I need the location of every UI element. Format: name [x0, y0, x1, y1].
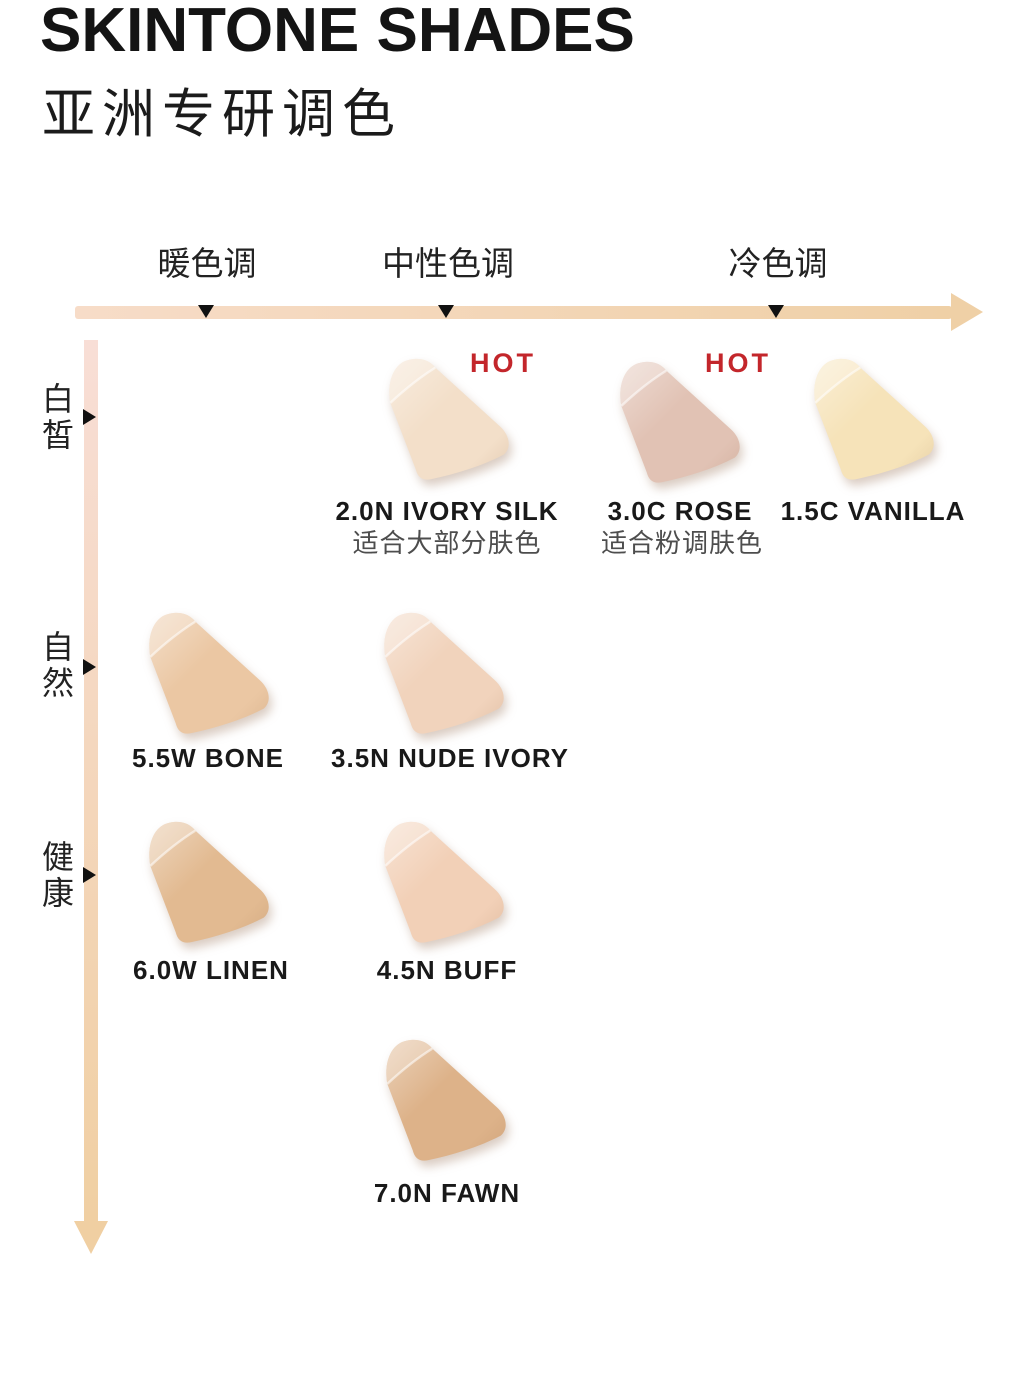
y-axis-label-fair: 白皙 [40, 382, 72, 454]
x-axis-tick-cool-icon [768, 305, 784, 318]
shade-name: 7.0N FAWN [374, 1179, 520, 1208]
smear-icon [372, 1033, 520, 1165]
page-subtitle: 亚洲专研调色 [42, 88, 402, 141]
x-axis-label-cool: 冷色调 [729, 246, 828, 282]
y-axis-tick-fair-icon [83, 409, 96, 425]
shade-swatch-ivory-silk [375, 352, 523, 484]
shade-swatch-nude-ivory [370, 606, 518, 738]
page-title: SKINTONE SHADES [40, 0, 635, 62]
smear-icon [135, 606, 283, 738]
smear-icon [370, 815, 518, 947]
y-axis-tick-natural-icon [83, 659, 96, 675]
smear-icon [375, 352, 523, 484]
x-axis-tick-warm-icon [198, 305, 214, 318]
y-axis-arrowhead-icon [74, 1221, 108, 1254]
y-axis-label-natural: 自然 [40, 630, 72, 702]
shade-note: 适合大部分肤色 [352, 529, 541, 558]
shade-note: 适合粉调肤色 [601, 529, 763, 558]
shade-name: 3.0C ROSE [608, 497, 753, 526]
shade-swatch-fawn [372, 1033, 520, 1165]
smear-icon [135, 815, 283, 947]
shade-name: 5.5W BONE [132, 744, 284, 773]
smear-icon [606, 355, 754, 487]
smear-icon [370, 606, 518, 738]
x-axis-tick-neutral-icon [438, 305, 454, 318]
x-axis-label-neutral: 中性色调 [382, 246, 514, 282]
y-axis-line [84, 340, 98, 1222]
shade-swatch-bone [135, 606, 283, 738]
shade-swatch-vanilla [800, 352, 948, 484]
smear-icon [800, 352, 948, 484]
y-axis-tick-healthy-icon [83, 867, 96, 883]
shade-swatch-rose [606, 355, 754, 487]
shade-swatch-buff [370, 815, 518, 947]
shade-name: 2.0N IVORY SILK [335, 497, 558, 526]
skintone-shades-infographic: SKINTONE SHADES 亚洲专研调色 暖色调 中性色调 冷色调 白皙 自… [0, 0, 1024, 1383]
shade-name: 6.0W LINEN [133, 956, 289, 985]
x-axis-arrowhead-icon [951, 293, 983, 331]
x-axis-label-warm: 暖色调 [158, 246, 257, 282]
shade-name: 1.5C VANILLA [781, 497, 966, 526]
shade-name: 4.5N BUFF [377, 956, 517, 985]
shade-swatch-linen [135, 815, 283, 947]
y-axis-label-healthy: 健康 [40, 840, 72, 912]
shade-name: 3.5N NUDE IVORY [331, 744, 569, 773]
